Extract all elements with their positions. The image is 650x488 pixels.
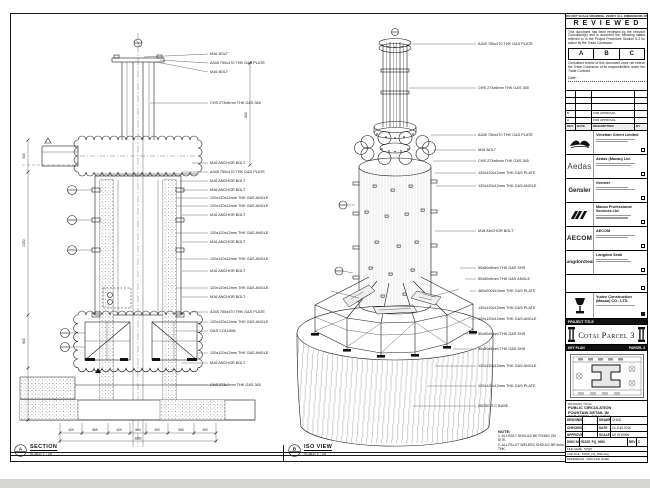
contractor-box: Yudee Construction (Macau) CO., LTD. <box>565 293 648 319</box>
callout-label: 120x120x12mm THK G&S ANGLE <box>210 231 269 235</box>
consultant-name: Aedas (Macau) Ltd. <box>596 157 645 161</box>
svg-text:B: B <box>293 446 297 451</box>
callout-label: 120x120x12mm THK G&S PLATE <box>478 384 536 388</box>
pipe-bundle <box>379 29 411 128</box>
address-line <box>596 237 628 238</box>
revision-header-row: REVDATEDESCRIPTIONBY <box>566 124 647 130</box>
dim-label: 500 <box>22 153 26 159</box>
dim-label: 800 <box>244 112 248 118</box>
consultant-langdon-seah: LangdonSeah Langdon Seah <box>565 251 648 275</box>
langdon-seah-logo: LangdonSeah <box>566 260 594 265</box>
callout-label: 120x120x12mm THK G&S ANGLE <box>478 317 537 321</box>
consultant-checkbox[interactable] <box>641 196 645 200</box>
callout-label: A345 750x470 THK G&S PLATE <box>478 133 533 137</box>
revision-row: BFOR APPROVAL <box>566 111 647 118</box>
status-b: B <box>594 49 619 59</box>
reference-row: REFERENCE : DWG FILE NAME <box>566 457 647 461</box>
callout-label: A345 750x470 THK G&S PLATE <box>478 42 533 46</box>
dwg-no-label: DWG NO. <box>566 438 580 446</box>
callout-label: M16 ANCHOR BOLT <box>210 240 246 244</box>
callout-label: A345 750x470 THK G&S PLATE <box>210 170 265 174</box>
address-line <box>596 217 628 218</box>
iso-view-drawing: A345 750x470 THK G&S PLATE CHS 273x6mm T… <box>285 15 565 460</box>
dwg-no-value: 51525_FQ_0000 <box>580 438 628 446</box>
review-date-line: Date : <box>568 76 645 82</box>
callout-label: 120x120x12mm THK G&S ANGLE <box>210 320 269 324</box>
address-line <box>596 215 631 216</box>
revision-row: AFOR APPROVAL <box>566 118 647 125</box>
section-view-drawing: 400 565 400 550 400 565 400 2850 500 215… <box>10 15 285 460</box>
project-name-box: Cotai Parcel 3 <box>565 325 648 345</box>
dim-label: 550 <box>135 428 141 432</box>
callout-label: 120x120x12mm THK G&S ANGLE <box>210 204 269 208</box>
aedas-logo: Aedas <box>567 162 591 171</box>
view-bubble-icon: A <box>14 444 27 457</box>
dim-label: 400 <box>154 428 160 432</box>
note-line: 2. ALL FILLET WELDED SHOULD BE 6mm THK. <box>498 443 564 452</box>
consultant-checkbox[interactable] <box>641 148 645 152</box>
dim-label: 800 <box>22 338 26 344</box>
view-title: ISO VIEW <box>304 444 332 451</box>
callout-label: 50x50x5mm THK G&S ANGLE <box>478 277 531 281</box>
drawing-title-box: DRAWING TITLE: PUBLIC CIRCULATION FOUNTA… <box>565 401 648 417</box>
note-line: 1. ALL BOLT SHOULD BE FIXING ON SITE. <box>498 434 564 443</box>
consultant-macau-professional: Macau Professional Services Ltd. <box>565 203 648 227</box>
title-block-fields: DESIGNED - DRAWN CHAD CHECKED - DATE 14-… <box>565 417 648 438</box>
venetian-orient-logo-icon <box>566 131 594 154</box>
consultant-aecom: AECOM AECOM <box>565 227 648 251</box>
view-title: SECTION <box>30 444 57 451</box>
review-paragraph: This document has been reviewed by the r… <box>568 31 645 47</box>
field-row: CHECKED - DATE 14-JUN-2016 <box>566 425 647 433</box>
callout-label: CHS 273x6mm THK G&S 345 <box>210 383 261 387</box>
callout-label: 50x50x5mm THK G&S SHS <box>478 332 526 336</box>
project-name: Cotai Parcel 3 <box>578 330 635 340</box>
callout-label: M16 ANCHOR BOLT <box>210 361 246 365</box>
callout-label: 120x120x12mm THK G&S PLATE <box>478 171 536 175</box>
callout-label: CHS 273x6mm THK G&S 345 <box>478 86 529 90</box>
aecom-logo: AECOM <box>567 235 592 242</box>
callout-label: 50x50x5mm THK G&S SHS <box>478 347 526 351</box>
revision-row <box>566 104 647 111</box>
gensler-logo: Gensler <box>568 188 590 194</box>
address-line <box>596 305 635 306</box>
callout-label: A345 750x470 THK G&S PLATE <box>210 61 265 65</box>
general-notes: NOTE: 1. ALL BOLT SHOULD BE FIXING ON SI… <box>498 429 564 451</box>
consultant-checkbox[interactable] <box>641 268 645 272</box>
review-paragraph-2: Consultant review of this document does … <box>568 62 645 74</box>
address-line <box>596 261 631 262</box>
callout-label: M16 ANCHOR BOLT <box>210 295 246 299</box>
pillar-icon <box>638 327 645 342</box>
dim-label: 400 <box>202 428 208 432</box>
callout-label: 120x120x12mm THK G&S ANGLE <box>210 257 269 261</box>
consultant-aedas: Aedas Aedas (Macau) Ltd. <box>565 155 648 179</box>
address-line <box>596 189 635 190</box>
address-line <box>596 259 628 260</box>
consultant-venetian-orient: Venetian Orient Limited <box>565 131 648 155</box>
callout-label: M16 ANCHOR BOLT <box>210 179 246 183</box>
consultant-checkbox[interactable] <box>641 172 645 176</box>
dim-label: 565 <box>178 428 184 432</box>
review-status-row: A B C <box>568 48 645 60</box>
callout-label: 120x120x12mm THK G&S ANGLE <box>478 364 537 368</box>
dim-label: 565 <box>92 428 98 432</box>
rev-label: REV <box>628 438 637 446</box>
revision-row <box>566 91 647 98</box>
consultant-empty-slot <box>565 275 648 293</box>
detail-bubbles-iso <box>335 201 355 275</box>
consultant-name: Gensler <box>596 181 645 185</box>
dim-label: 400 <box>116 428 122 432</box>
rev-value: C <box>637 438 647 446</box>
callout-label: 120x120x12mm THK G&S ANGLE <box>478 184 537 188</box>
callout-label: 120x120x12mm THK G&S ANGLE <box>210 351 269 355</box>
page-edge <box>0 479 650 488</box>
svg-text:A: A <box>19 446 23 451</box>
address-line <box>596 165 631 166</box>
consultant-checkbox[interactable] <box>641 244 645 248</box>
consultant-gensler: Gensler Gensler <box>565 179 648 203</box>
project-title-band-label: PROJECT TITLE <box>568 319 594 324</box>
reviewed-title: R E V I E W E D <box>566 20 647 29</box>
consultant-name: Macau Professional Services Ltd. <box>596 205 645 213</box>
dim-label: 400 <box>68 428 74 432</box>
macau-professional-logo-icon <box>573 211 586 219</box>
callout-label: 120x120x12mm THK G&S ANGLE <box>210 196 269 200</box>
key-plan-drawing <box>565 351 648 401</box>
callout-label: 120x120x12mm THK G&S PLATE <box>478 306 536 310</box>
file-reference-rows: FILE NAME : 51525 CAD FILE : 51525_FQ_00… <box>565 447 648 463</box>
detail-bubbles-left <box>61 186 93 352</box>
consultant-name: AECOM <box>596 229 645 233</box>
dwg-number-row: DWG NO. 51525_FQ_0000 REV C <box>565 438 648 447</box>
callout-label: 120x120x12mm THK G&S ANGLE <box>210 286 269 290</box>
address-line <box>596 163 635 164</box>
consultant-checkbox[interactable] <box>641 286 645 290</box>
callout-label: M16 ANCHOR BOLT <box>478 229 514 233</box>
address-line <box>596 139 635 140</box>
callout-label: M16 BOLT <box>478 148 497 152</box>
dim-total-label: 2850 <box>134 437 141 441</box>
address-line <box>596 187 628 188</box>
callout-label: M16 ANCHOR BOLT <box>210 213 246 217</box>
section-callouts: M16 BOLT A345 750x470 THK G&S PLATE M16 … <box>144 52 269 387</box>
consultant-name: Langdon Seah <box>596 253 645 257</box>
callout-label: M16 BOLT <box>210 70 229 74</box>
status-c: C <box>620 49 644 59</box>
callout-label: G&S COLUMN <box>210 329 236 333</box>
revision-table: BFOR APPROVAL AFOR APPROVAL REVDATEDESCR… <box>565 91 648 131</box>
callout-label: M16 ANCHOR BOLT <box>210 188 246 192</box>
callout-label: CHS 273x6mm THK G&S 345 <box>478 159 529 163</box>
field-row: DESIGNED - DRAWN CHAD <box>566 417 647 425</box>
iso-view-title: B ISO VIEW SCALE 1 : 25 <box>288 444 332 460</box>
title-block-sidebar: DO NOT SCALE DRAWING. VERIFY ALL DIMENSI… <box>565 13 648 462</box>
dim-label: 2150 <box>22 239 26 246</box>
callout-label: Ø4250 R.C BASE <box>478 404 509 408</box>
consultant-checkbox[interactable] <box>641 220 645 224</box>
view-scale: SCALE 1 : 25 <box>304 452 332 456</box>
callout-label: M16 ANCHOR BOLT <box>210 161 246 165</box>
callout-label: CHS 273x6mm THK G&S 345 <box>210 101 261 105</box>
callout-label: M16 ANCHOR BOLT <box>210 269 246 273</box>
consultant-name: Venetian Orient Limited <box>596 133 645 137</box>
revision-row <box>566 98 647 105</box>
callout-label: A345 750x470 THK G&S PLATE <box>210 310 265 314</box>
view-divider <box>283 445 284 462</box>
section-view-title: A SECTION SCALE 1 : 25 <box>14 444 57 460</box>
scalloped-basin-band <box>22 136 202 176</box>
status-a: A <box>569 49 594 59</box>
view-bubble-icon: B <box>288 444 301 457</box>
pillar-icon <box>568 327 575 342</box>
key-plan-label: KEY PLAN <box>568 345 585 350</box>
drawing-sheet: 400 565 400 550 400 565 400 2850 500 215… <box>0 0 650 488</box>
callout-label: 50x50x5mm THK G&S SHS <box>478 266 526 270</box>
address-line <box>596 235 635 236</box>
contractor-name: (Macau) CO., LTD. <box>596 299 645 303</box>
address-line <box>596 141 628 142</box>
callout-label: 460x200x10mm THK G&S PLATE <box>478 289 536 293</box>
contractor-logo-icon <box>566 293 594 318</box>
key-plan-right-label: PARCEL 3 <box>629 345 645 350</box>
view-scale: SCALE 1 : 25 <box>30 452 57 456</box>
contractor-checkbox[interactable] <box>641 312 645 316</box>
review-stamp: R E V I E W E D This document has been r… <box>565 19 648 91</box>
callout-label: M16 BOLT <box>210 52 229 56</box>
